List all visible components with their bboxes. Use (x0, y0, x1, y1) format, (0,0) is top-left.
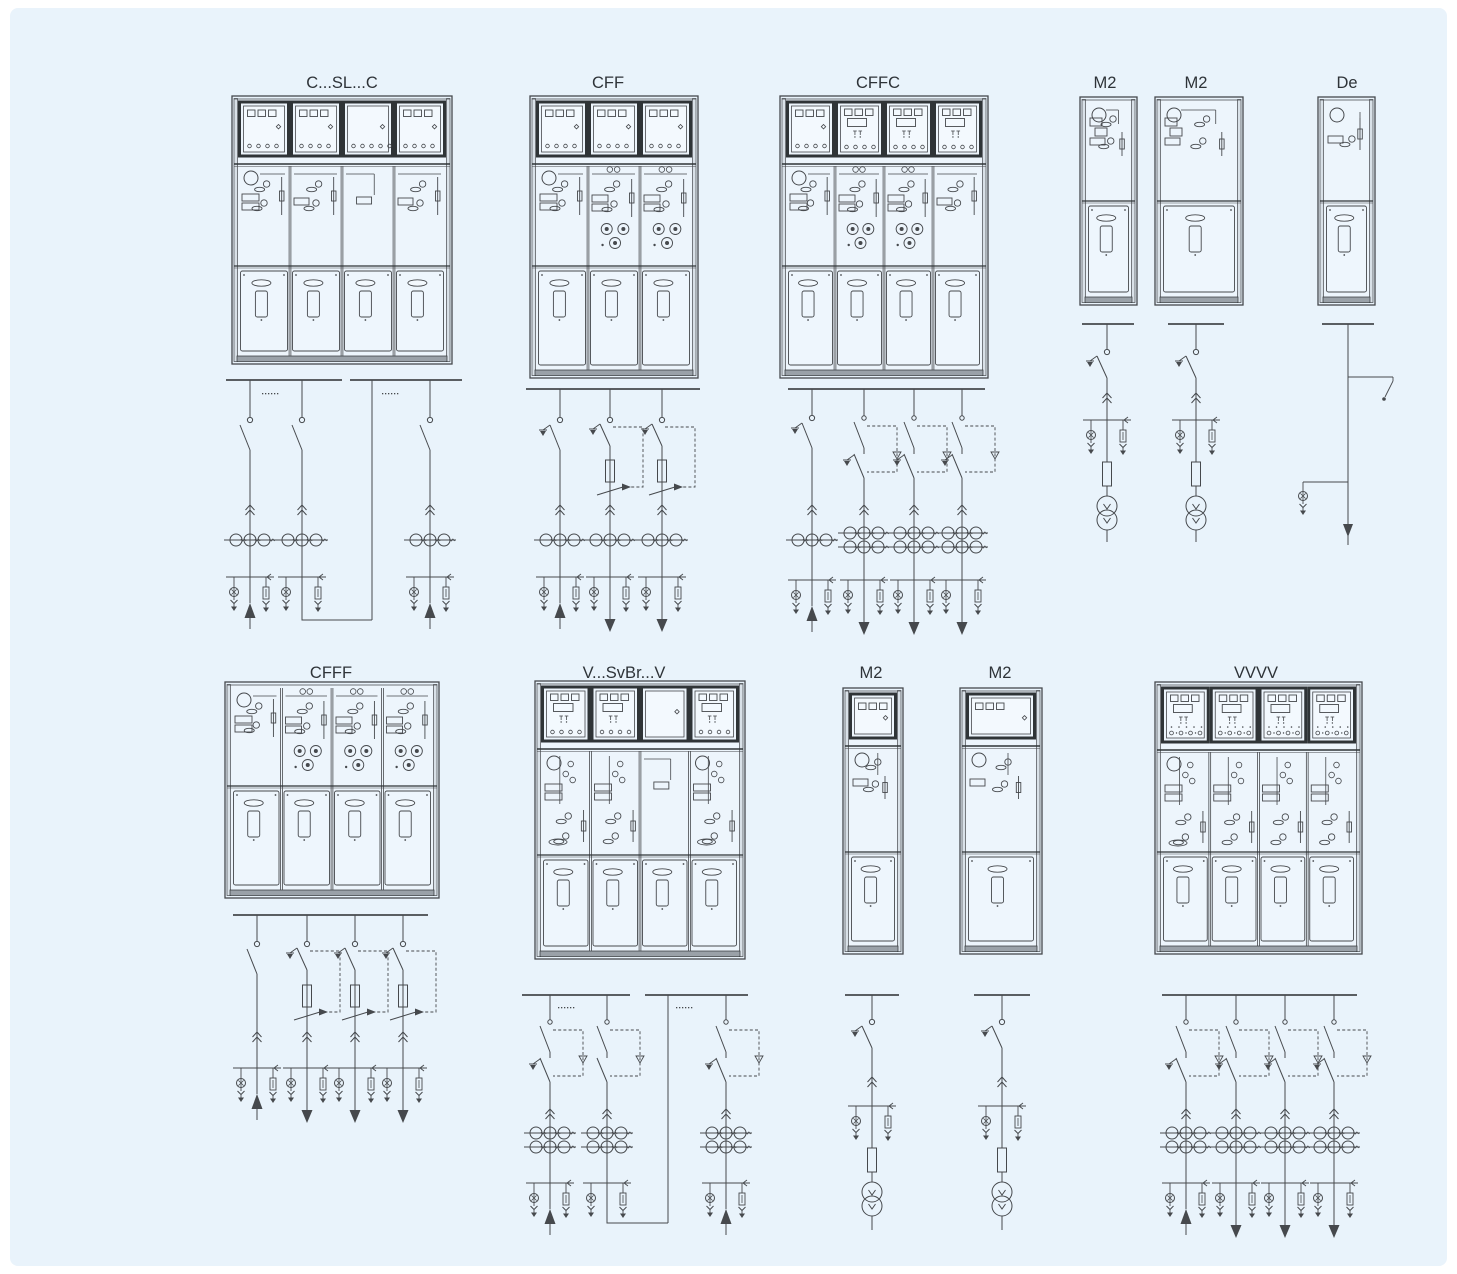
cabinet-front-view (232, 96, 452, 364)
unit-label: C...SL...C (306, 74, 378, 92)
cabinet-front-view (535, 681, 745, 959)
unit-cfff: CFFF (225, 664, 439, 1123)
feeder-F (584, 389, 643, 632)
single-line-diagram (786, 389, 999, 635)
single-line-diagram (224, 380, 462, 629)
unit-label: V...SvBr...V (583, 664, 666, 682)
feeder-De (1299, 324, 1394, 545)
unit-label: CFF (592, 74, 624, 92)
feeder-V (838, 389, 901, 635)
cabinet-front-view (225, 682, 439, 898)
single-line-diagram (233, 915, 436, 1123)
feeder-C (404, 380, 456, 629)
feeder-V (524, 995, 587, 1235)
unit-label: CFFF (310, 664, 352, 682)
feeder-V (888, 389, 951, 635)
switchgear-configurations-diagram: C...SL...CCFFCFFCM2M2DeCFFFV...SvBr...VM… (0, 0, 1457, 1274)
unit-label: VVVV (1234, 664, 1278, 682)
cabinet-front-view (530, 96, 698, 378)
unit-cffc: CFFC (780, 74, 999, 635)
unit-c-sl-c: C...SL...C (224, 74, 462, 629)
unit-cff: CFF (526, 74, 700, 632)
unit-label: M2 (1094, 74, 1117, 92)
feeder-M (978, 995, 1026, 1230)
single-line-diagram (526, 389, 700, 632)
unit-label: M2 (989, 664, 1012, 682)
switchgear-catalog-page: C...SL...CCFFCFFCM2M2DeCFFFV...SvBr...VM… (0, 0, 1457, 1274)
feeder-V (700, 995, 763, 1235)
feeder-M (1172, 324, 1220, 542)
feeder-V (581, 995, 644, 1218)
unit-vvvv: VVVV (1155, 664, 1371, 1238)
cabinet-front-view (843, 688, 903, 954)
unit-m2-top-2: M2 (1155, 74, 1243, 542)
feeder-V (1308, 995, 1371, 1238)
single-line-diagram (1160, 995, 1371, 1238)
feeder-F (331, 915, 388, 1123)
single-line-diagram (1299, 324, 1394, 545)
single-line-diagram (1082, 324, 1134, 542)
unit-label: De (1336, 74, 1357, 92)
single-line-diagram (522, 995, 763, 1235)
unit-label: CFFC (856, 74, 900, 92)
single-line-diagram (845, 995, 899, 1230)
unit-m2-top-1: M2 (1080, 74, 1137, 542)
feeder-M (1083, 324, 1131, 542)
feeder-V (1259, 995, 1322, 1238)
unit-v-svbr-v: V...SvBr...V (522, 664, 763, 1235)
single-line-diagram (1168, 324, 1224, 542)
unit-label: M2 (860, 664, 883, 682)
feeder-C (224, 380, 276, 629)
unit-label: M2 (1185, 74, 1208, 92)
unit-m2-bottom-2: M2 (960, 664, 1042, 1230)
cabinet-front-view (1318, 97, 1375, 305)
single-line-diagram (974, 995, 1030, 1230)
feeder-F (283, 915, 340, 1123)
feeder-F (379, 915, 436, 1123)
cabinet-front-view (1155, 97, 1243, 305)
cabinet-front-view (1155, 682, 1362, 954)
feeder-F (636, 389, 695, 632)
cabinet-front-view (1080, 97, 1137, 305)
feeder-C (233, 915, 281, 1120)
feeder-C (786, 389, 838, 632)
feeder-V (1160, 995, 1223, 1235)
cabinet-front-view (780, 96, 988, 378)
unit-m2-bottom-1: M2 (843, 664, 903, 1230)
feeder-M (848, 995, 896, 1230)
unit-de: De (1299, 74, 1394, 545)
cabinet-front-view (960, 688, 1042, 954)
feeder-C (534, 389, 586, 629)
